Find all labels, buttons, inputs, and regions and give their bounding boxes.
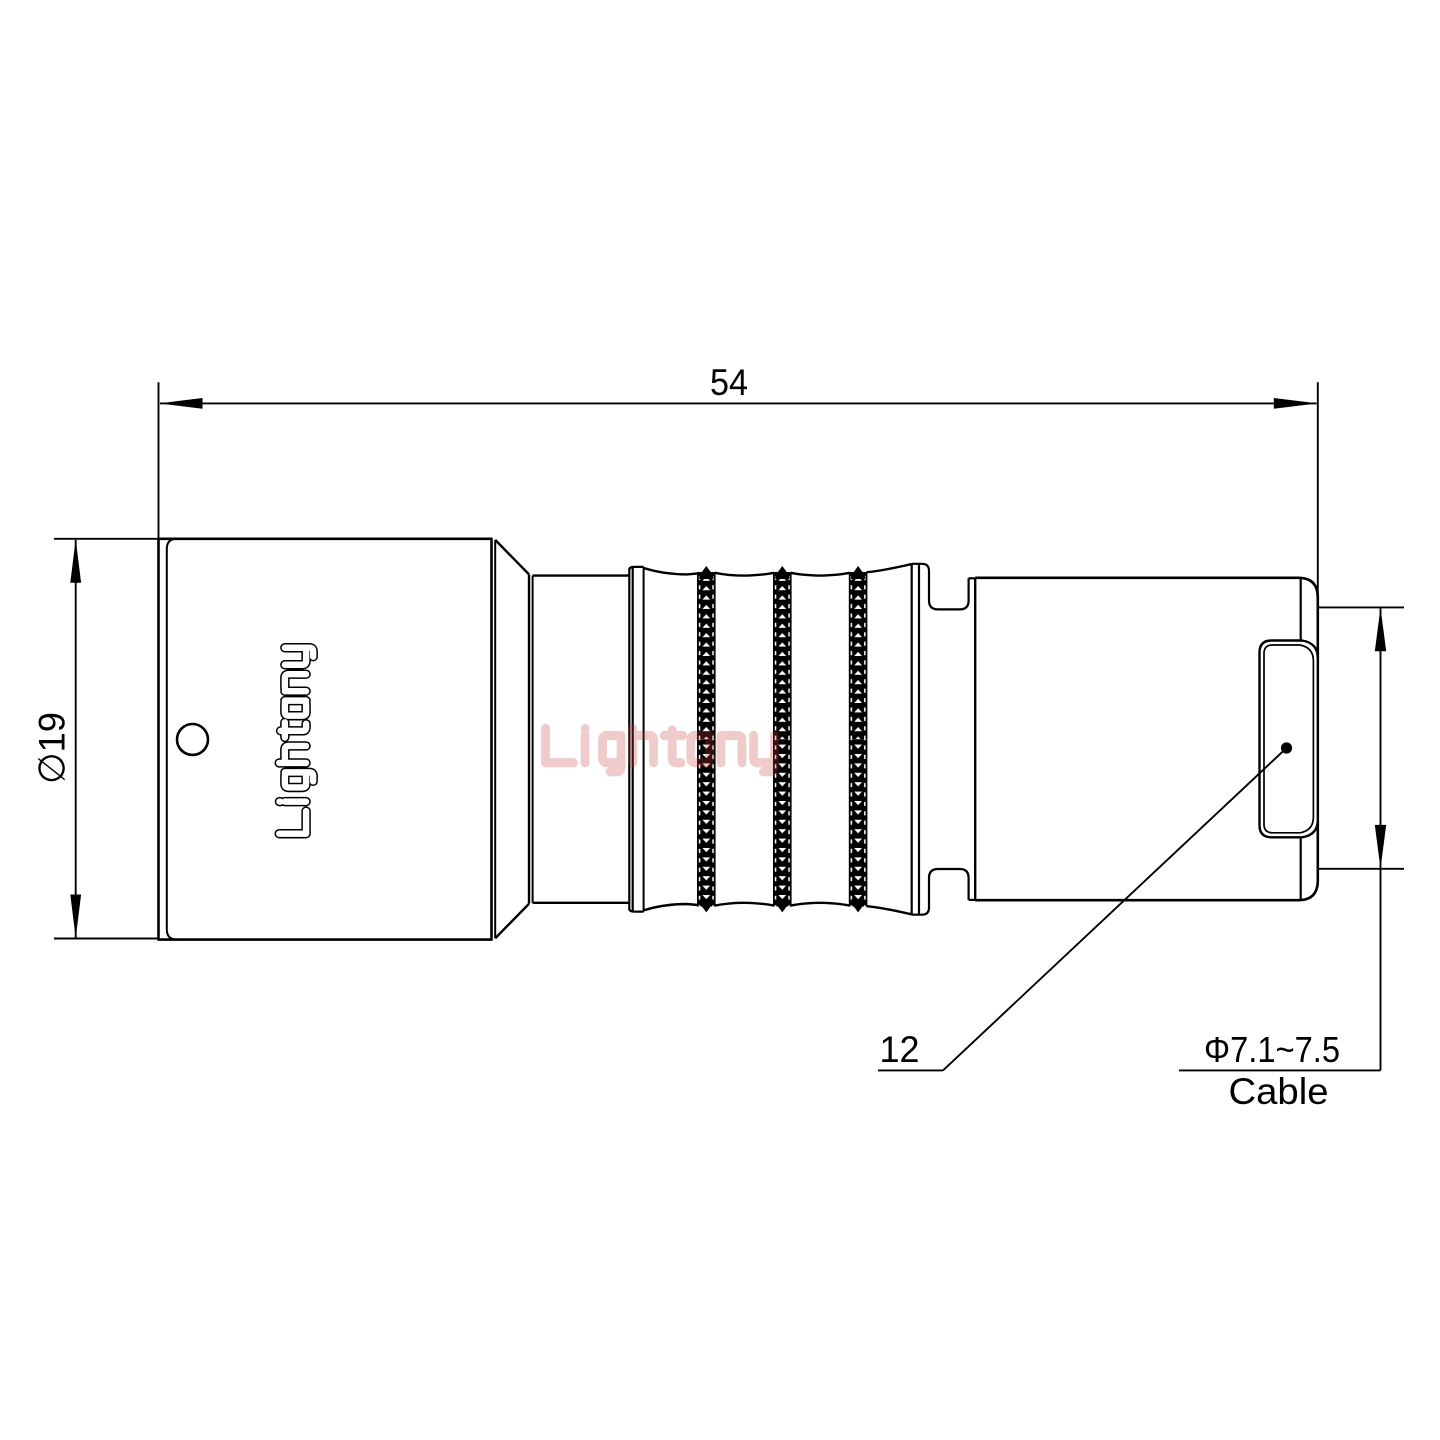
svg-text:12: 12	[880, 1029, 920, 1070]
svg-text:Φ7.1~7.5: Φ7.1~7.5	[1204, 1029, 1340, 1070]
svg-text:Cable: Cable	[1229, 1071, 1329, 1112]
svg-text:∅19: ∅19	[32, 712, 73, 784]
svg-text:54: 54	[710, 362, 748, 403]
